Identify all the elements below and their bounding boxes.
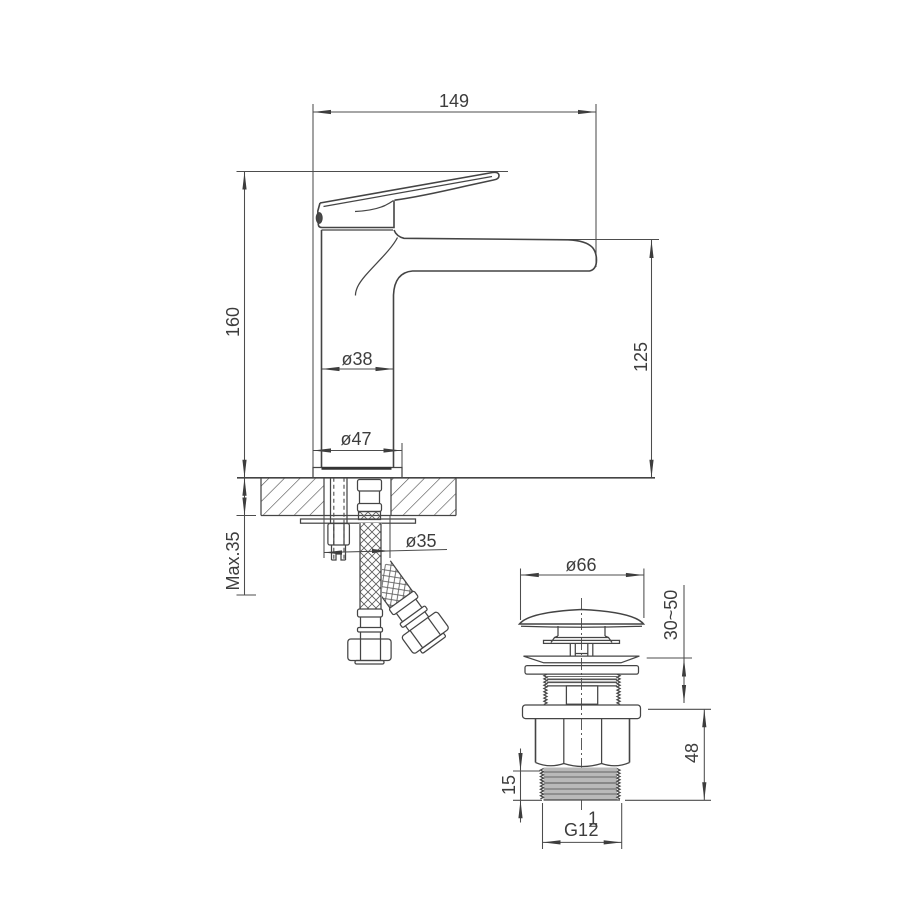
svg-text:ø47: ø47 (340, 429, 371, 449)
svg-text:125: 125 (631, 342, 651, 372)
svg-text:Max.35: Max.35 (223, 531, 243, 590)
svg-text:160: 160 (223, 307, 243, 337)
svg-text:ø35: ø35 (405, 531, 436, 551)
svg-text:48: 48 (682, 743, 702, 763)
svg-text:G1: G1 (564, 820, 588, 840)
svg-text:30~50: 30~50 (661, 590, 681, 641)
svg-text:ø66: ø66 (565, 555, 596, 575)
svg-text:15: 15 (499, 775, 519, 795)
svg-text:2: 2 (588, 820, 598, 840)
svg-text:ø38: ø38 (341, 349, 372, 369)
svg-text:149: 149 (439, 91, 469, 111)
